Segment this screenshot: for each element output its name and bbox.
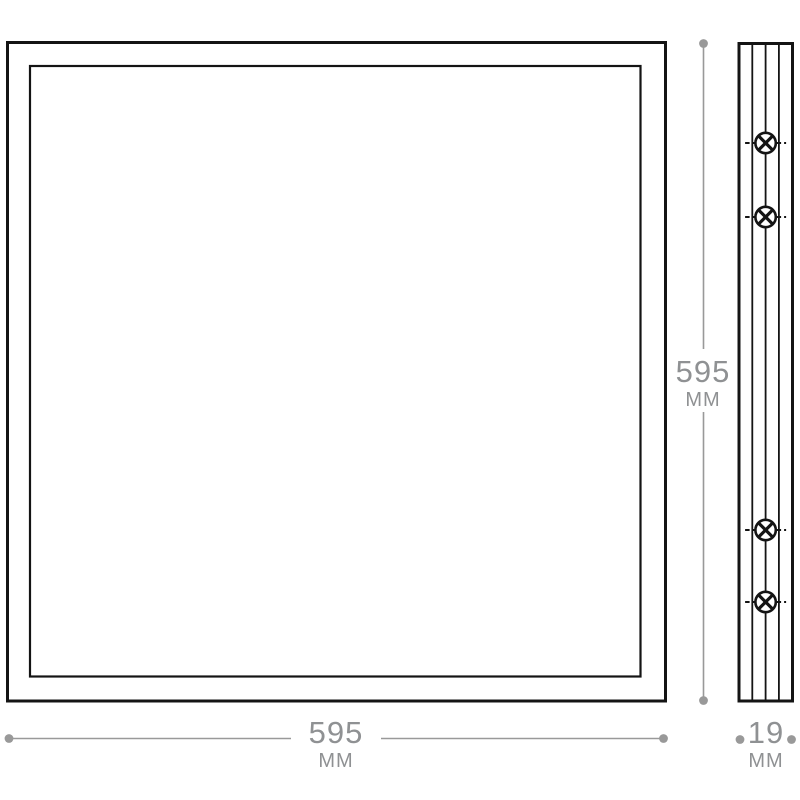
screw-icon [745, 592, 786, 612]
height-dimension-value: 595 [643, 356, 763, 387]
depth-dimension-unit: MM [706, 751, 800, 771]
width-dimension-value: 595 [276, 717, 396, 748]
front-inner-frame [30, 66, 641, 677]
depth-dimension-value: 19 [706, 717, 800, 748]
height-dimension-label: 595 MM [643, 356, 763, 410]
screw-icon [745, 133, 786, 153]
width-dimension-label: 595 MM [276, 717, 396, 771]
height-dim-end-dot [699, 39, 708, 48]
screw-icon [745, 207, 786, 227]
width-dim-end-dot [659, 734, 668, 743]
panel-dimension-drawing: 595 MM 595 MM 19 MM [0, 0, 800, 800]
height-dimension-unit: MM [643, 390, 763, 410]
height-dim-end-dot [699, 696, 708, 705]
depth-dimension-label: 19 MM [706, 717, 800, 771]
width-dimension-unit: MM [276, 751, 396, 771]
panel-front-view [8, 43, 666, 702]
width-dim-end-dot [5, 734, 14, 743]
front-outer-frame [8, 43, 666, 702]
screw-icon [745, 520, 786, 540]
